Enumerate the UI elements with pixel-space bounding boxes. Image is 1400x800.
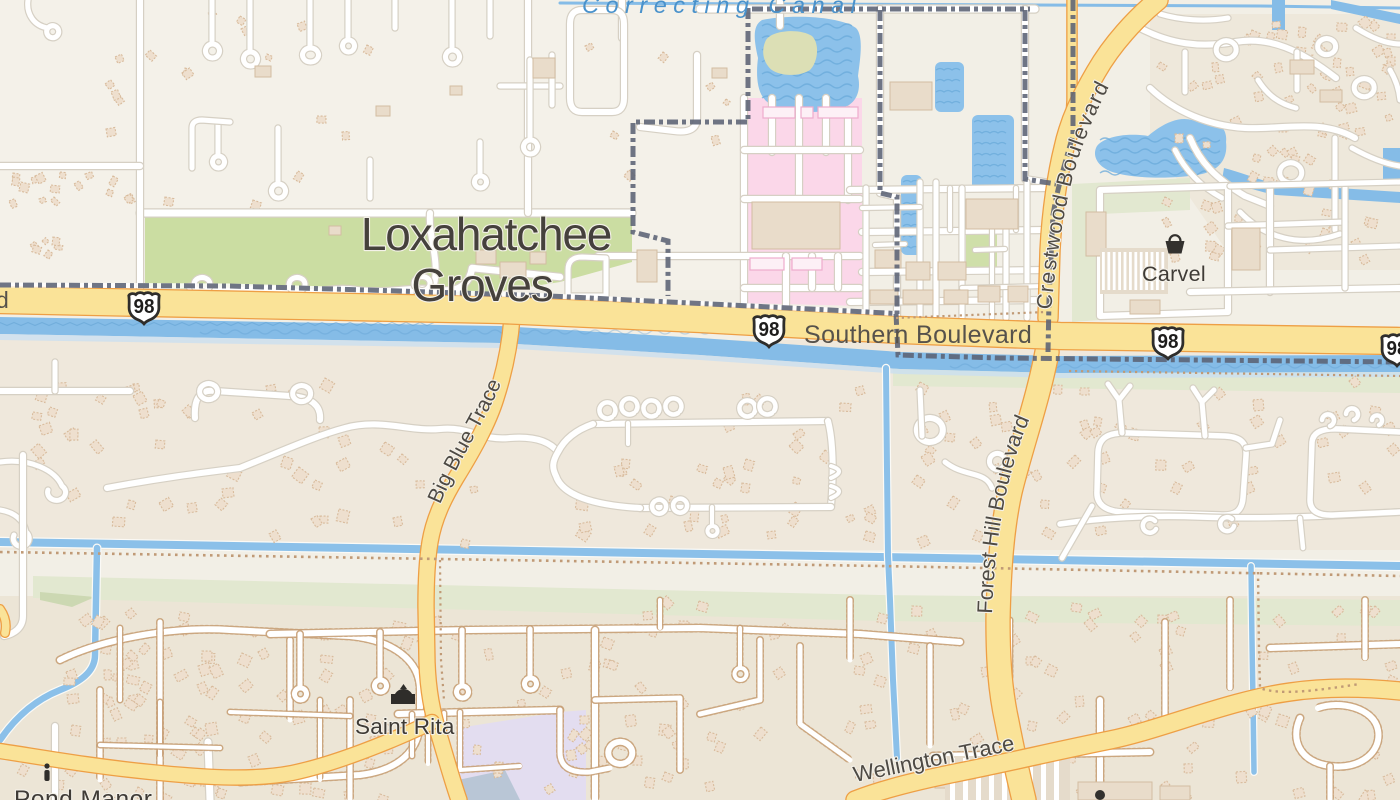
svg-text:Carvel: Carvel — [1142, 262, 1206, 286]
svg-text:Loxahatchee: Loxahatchee — [361, 208, 611, 260]
svg-text:98: 98 — [759, 318, 780, 341]
svg-text:d: d — [0, 287, 9, 313]
svg-text:Southern Boulevard: Southern Boulevard — [804, 321, 1032, 349]
svg-text:Groves: Groves — [411, 259, 552, 311]
svg-text:Saint Rita: Saint Rita — [355, 714, 455, 739]
svg-text:Correcting Canal: Correcting Canal — [582, 0, 862, 18]
svg-text:98: 98 — [134, 295, 155, 318]
svg-text:98: 98 — [1387, 337, 1400, 360]
svg-text:Pond Manor: Pond Manor — [14, 786, 152, 800]
svg-text:98: 98 — [1158, 330, 1179, 353]
